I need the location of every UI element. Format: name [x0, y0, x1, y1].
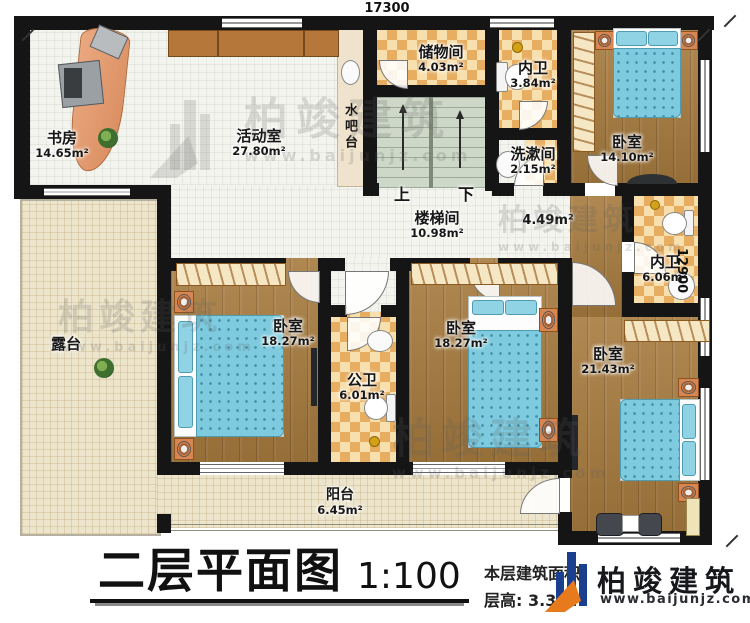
floor-terrace — [20, 199, 161, 536]
label-balcony: 阳台 6.45m² — [300, 488, 380, 517]
dresser — [686, 498, 700, 536]
label-bath-east: 内卫 6.06m² — [628, 254, 702, 284]
label-stairs-up: 上 — [390, 186, 414, 204]
window-bedroomse-east — [700, 388, 710, 480]
label-activity: 活动室 27.80m² — [219, 128, 299, 158]
sideboard — [168, 30, 339, 57]
pillow — [472, 300, 504, 315]
monitor-screen — [64, 68, 82, 98]
nightstand — [174, 291, 194, 313]
label-study: 书房 14.65m² — [22, 130, 102, 160]
brand-logo-icon — [545, 552, 595, 614]
stairs-rail — [429, 97, 433, 188]
wall-wash-south-b — [543, 183, 557, 196]
label-bedroom-se: 卧室 21.43m² — [568, 346, 648, 376]
shower-fixture-east — [650, 200, 660, 210]
pillow — [505, 300, 537, 315]
wardrobe-se — [624, 320, 710, 342]
title-block: 二层平面图 1:100 — [90, 548, 469, 603]
window-bedroomne-east — [700, 60, 710, 152]
nightstand — [679, 31, 698, 50]
wall-bathn-wash-divider — [492, 128, 558, 140]
label-bedroom-west: 卧室 18.27m² — [248, 318, 328, 348]
label-bedroom-mid: 卧室 18.27m² — [421, 320, 501, 350]
window-activity-north — [222, 18, 302, 28]
dimension-top: 17300 — [352, 1, 422, 16]
pillow — [178, 321, 193, 373]
floor-drain — [369, 436, 380, 447]
wall-south-b — [284, 462, 413, 475]
window-bathn-north — [490, 18, 554, 28]
brand-website: www.baijunjz.com — [600, 592, 750, 607]
side-table — [622, 515, 639, 532]
pillow — [682, 404, 696, 439]
wardrobe-mid — [411, 263, 558, 285]
wall-hall-stub — [363, 183, 379, 196]
label-storage: 储物间 4.03m² — [401, 44, 481, 74]
tv-west — [311, 348, 317, 406]
wall-south-a — [157, 462, 200, 475]
nightstand — [539, 308, 558, 332]
toilet-east — [662, 212, 687, 235]
label-bath-north: 内卫 3.84m² — [498, 60, 568, 90]
pillow — [178, 376, 193, 428]
window-bedroomw-south — [200, 464, 284, 473]
duvet-ne — [613, 48, 681, 118]
wall-left — [14, 16, 30, 199]
label-stairwell: 楼梯间 10.98m² — [397, 210, 477, 240]
nightstand — [174, 438, 194, 460]
dim-tick — [726, 535, 739, 548]
wall-south-c — [505, 462, 572, 475]
dim-tick — [724, 15, 737, 28]
wardrobe-west — [176, 263, 286, 286]
chair — [638, 513, 662, 536]
label-bedroom-ne: 卧室 14.10m² — [587, 134, 667, 164]
wall-west-inner — [157, 185, 171, 475]
balcony-parapet — [157, 524, 558, 531]
stairs-down-arrow — [459, 118, 461, 168]
wall-bathpublic-stub-b — [381, 305, 398, 317]
plan-title: 二层平面图 — [98, 548, 343, 595]
pillow — [682, 441, 696, 476]
window-bedroomm-south — [413, 464, 505, 473]
window-study-south — [44, 188, 130, 196]
pillow — [648, 31, 678, 46]
duvet-se — [620, 399, 680, 481]
shower-fixture-north — [512, 42, 523, 53]
label-water-bar: 水吧台 — [340, 103, 359, 151]
wall-bedroomne-south-a — [557, 183, 585, 196]
nightstand — [678, 378, 699, 397]
wall-balcony-stub — [157, 514, 171, 533]
wall-bathe-west-a — [622, 196, 634, 242]
plan-scale: 1:100 — [357, 559, 461, 595]
label-hall-area: 4.49m² — [508, 214, 588, 229]
tv-se — [572, 415, 578, 470]
stairs-up-arrow — [402, 112, 404, 170]
wall-wash-south-a — [492, 183, 514, 196]
floor-activity-south — [171, 185, 363, 262]
label-stairs-down: 下 — [454, 186, 478, 204]
water-bar-sink — [341, 60, 360, 85]
label-terrace: 露台 — [26, 336, 106, 353]
wall-storage-south — [363, 85, 499, 97]
label-wash: 洗漱间 2.15m² — [496, 146, 570, 176]
dimension-right: 12900 — [674, 248, 689, 293]
wall-bathpublic-east — [396, 258, 409, 462]
terrace-plant — [94, 358, 114, 378]
chair — [596, 513, 624, 536]
nightstand — [595, 31, 614, 50]
floor-plan: 书房 14.65m² 活动室 27.80m² 水吧台 储物间 4.03m² 内卫… — [0, 0, 750, 623]
label-bath-public: 公卫 6.01m² — [322, 372, 402, 402]
sink-public — [367, 330, 393, 352]
wall-stair-west — [363, 16, 377, 191]
pillow — [616, 31, 647, 46]
nightstand — [539, 418, 558, 442]
